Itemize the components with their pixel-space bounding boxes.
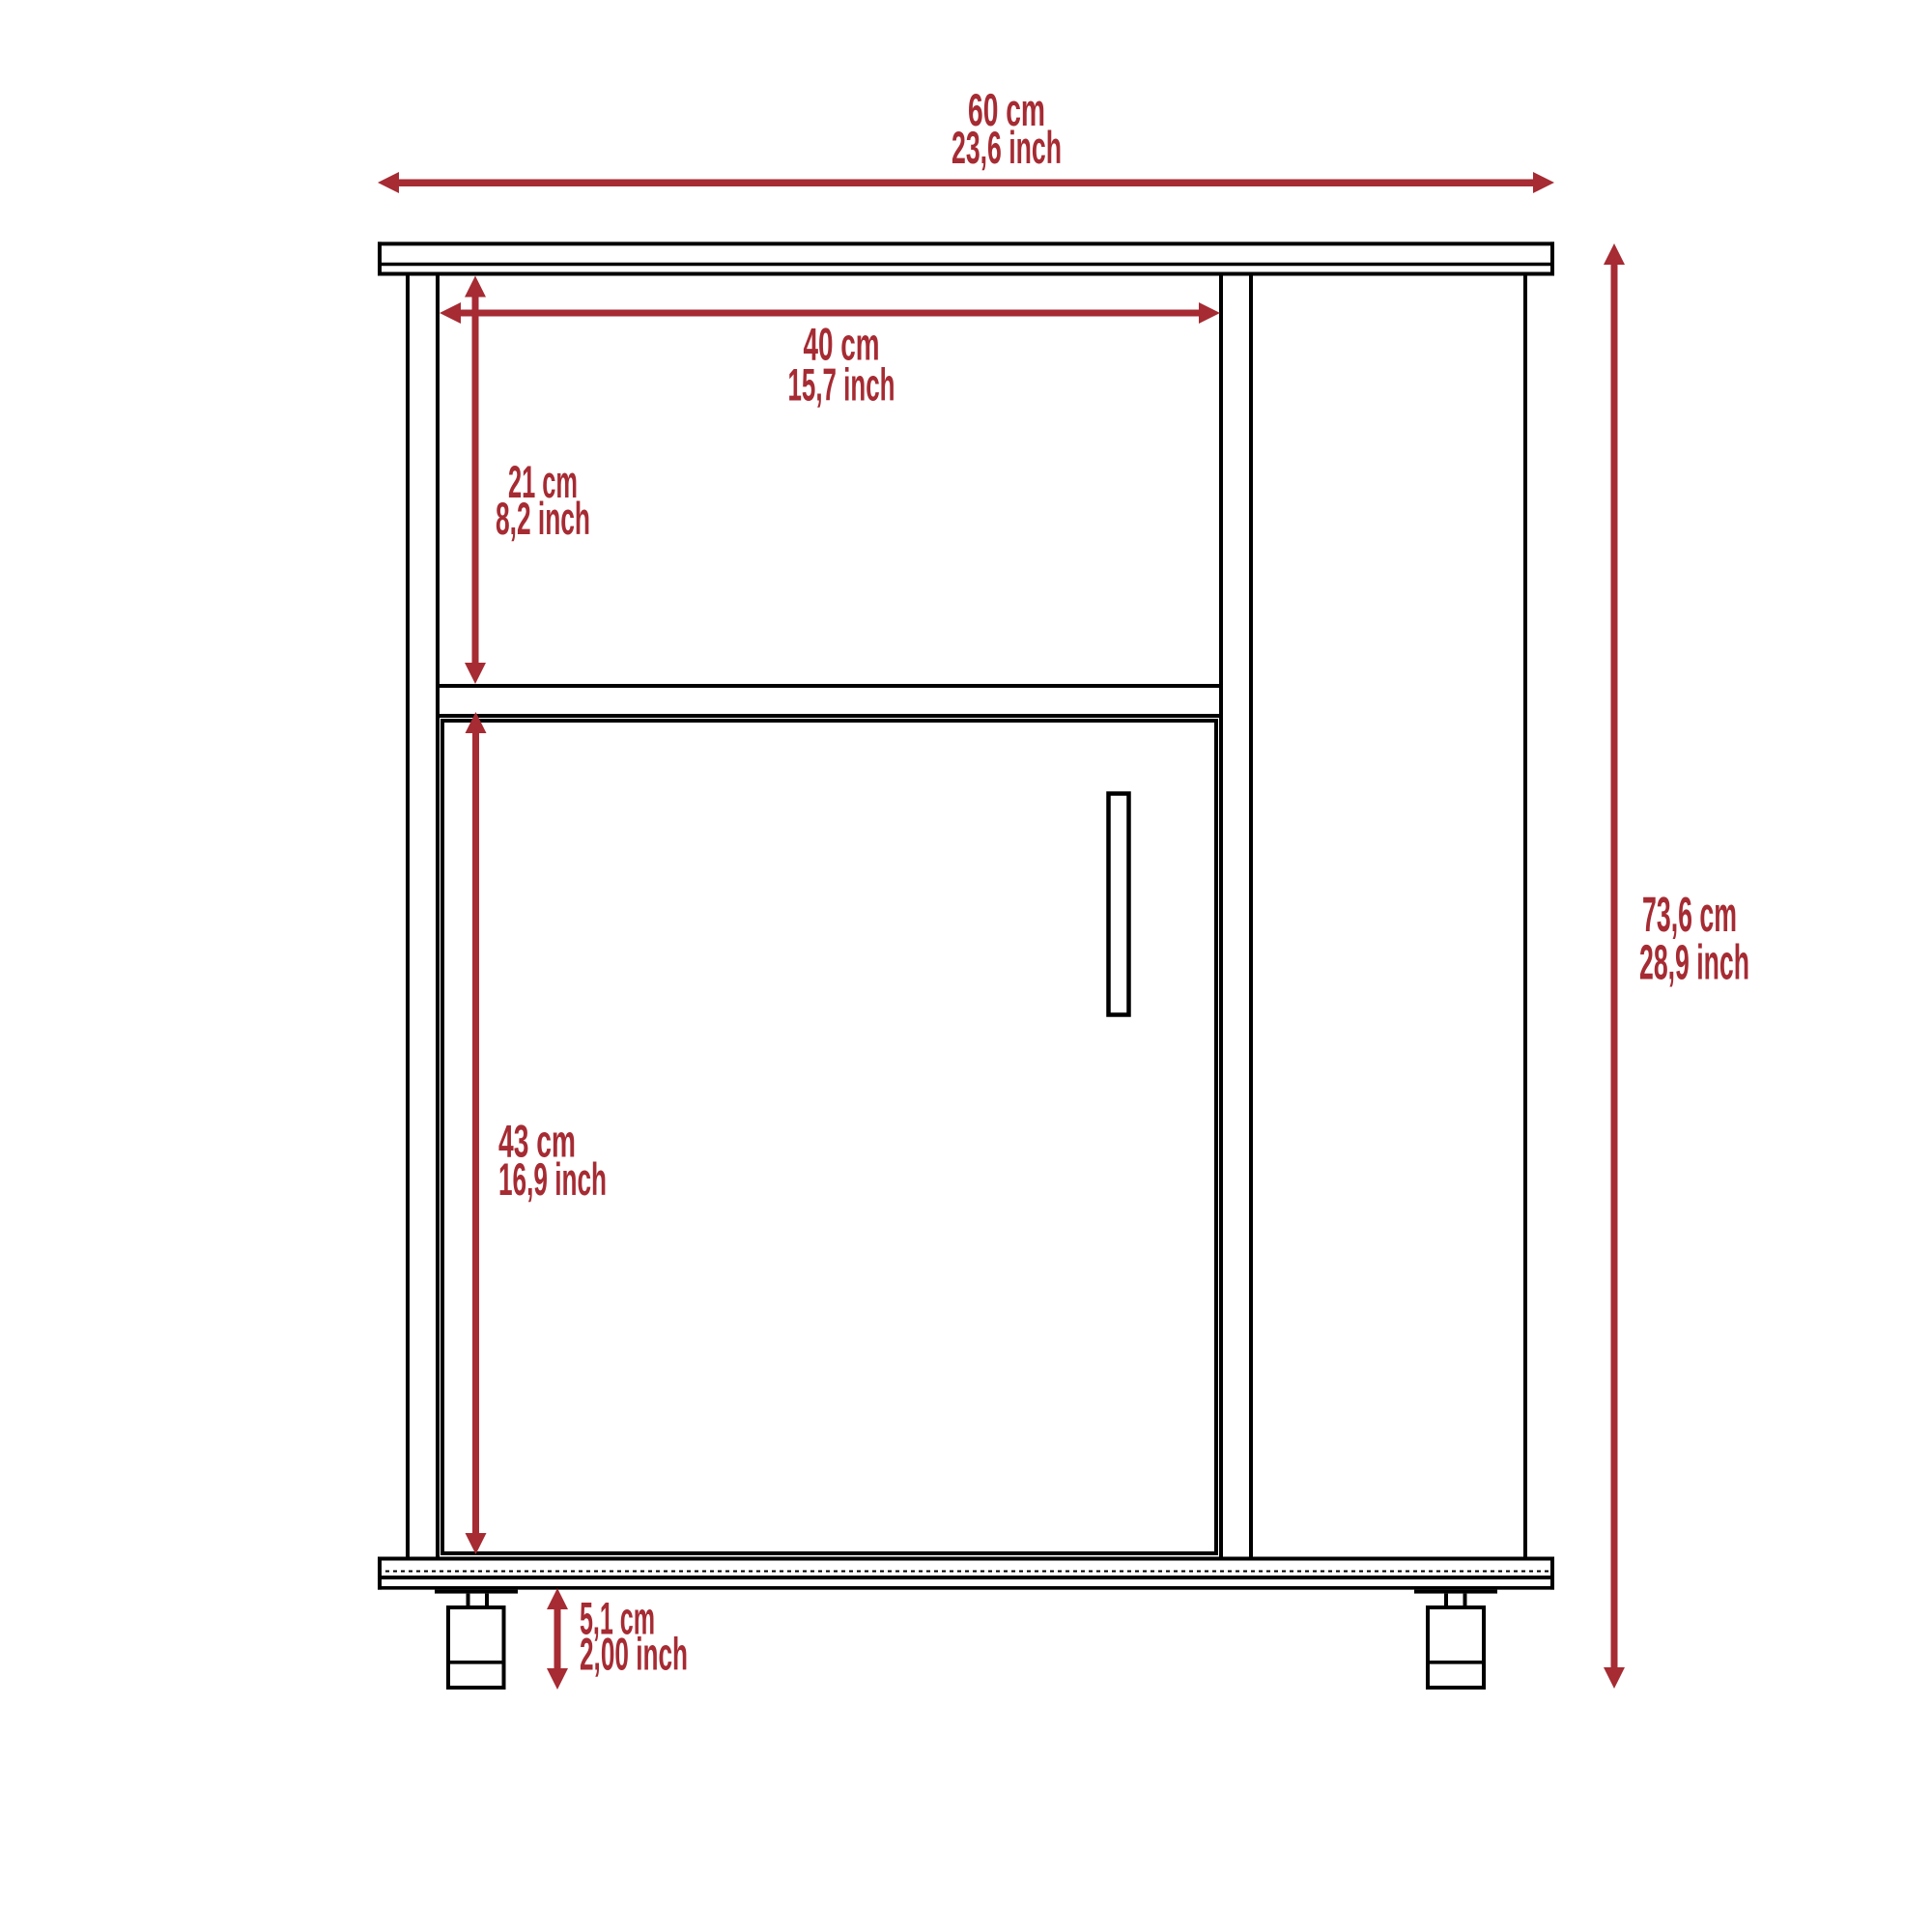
svg-text:2,00 inch: 2,00 inch bbox=[580, 1629, 688, 1680]
svg-text:8,2 inch: 8,2 inch bbox=[496, 493, 590, 544]
svg-text:15,7 inch: 15,7 inch bbox=[788, 359, 895, 411]
svg-text:16,9 inch: 16,9 inch bbox=[498, 1153, 607, 1205]
svg-text:28,9 inch: 28,9 inch bbox=[1639, 934, 1749, 989]
svg-text:23,6 inch: 23,6 inch bbox=[952, 122, 1062, 173]
